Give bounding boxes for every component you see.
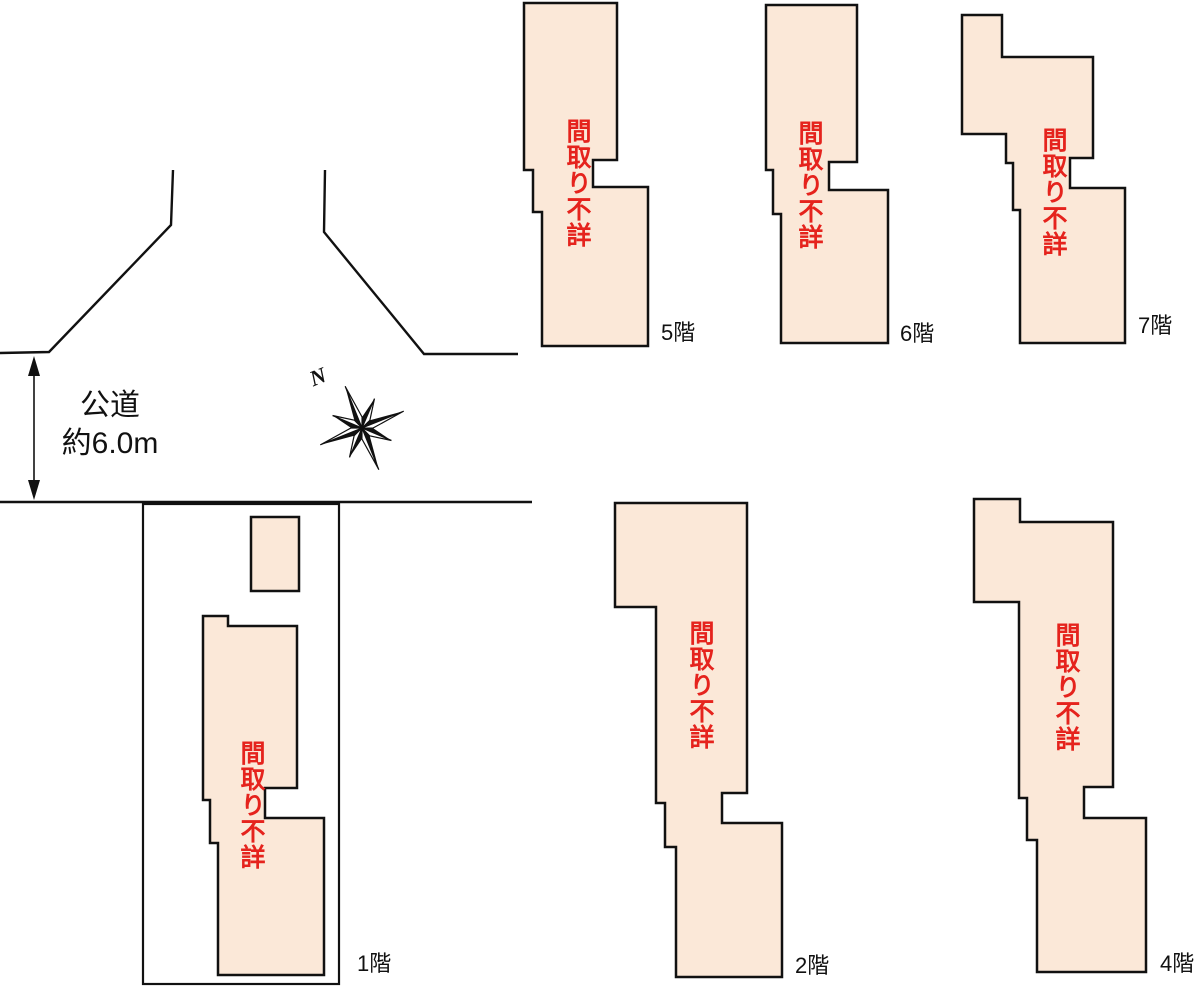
floorplan-drawing (0, 0, 1200, 990)
floor7-label: 7階 (1138, 313, 1172, 338)
floor2-3-unknown-note: 間取り不詳 (686, 620, 713, 750)
floor7-unknown-note: 間取り不詳 (1039, 127, 1066, 257)
floor2-3-label: 2階 3階 (795, 928, 829, 990)
floor1-annex-outline (251, 517, 299, 591)
site-boundary-right (324, 170, 518, 354)
floor2-label: 2階 (795, 953, 829, 978)
floor4-label: 4階 (1160, 951, 1194, 976)
floor1-label: 1階 (357, 951, 391, 976)
floor6-label: 6階 (900, 321, 934, 346)
floor5-label: 5階 (661, 320, 695, 345)
floor4-unknown-note: 間取り不詳 (1052, 622, 1079, 752)
site-boundary-left (0, 170, 173, 353)
floor5-unknown-note: 間取り不詳 (563, 118, 590, 248)
road-label: 公道 約6.0m (30, 387, 190, 463)
floor6-outline (766, 5, 888, 343)
road-width: 約6.0m (30, 425, 190, 463)
floor6-unknown-note: 間取り不詳 (795, 120, 822, 250)
floorplan-sheet: N 公道 約6.0m 間取り不詳 間取り不詳 間取り不詳 間取り不詳 間取り不詳… (0, 0, 1200, 990)
floor1-unknown-note: 間取り不詳 (237, 740, 264, 870)
road-name: 公道 (30, 387, 190, 425)
